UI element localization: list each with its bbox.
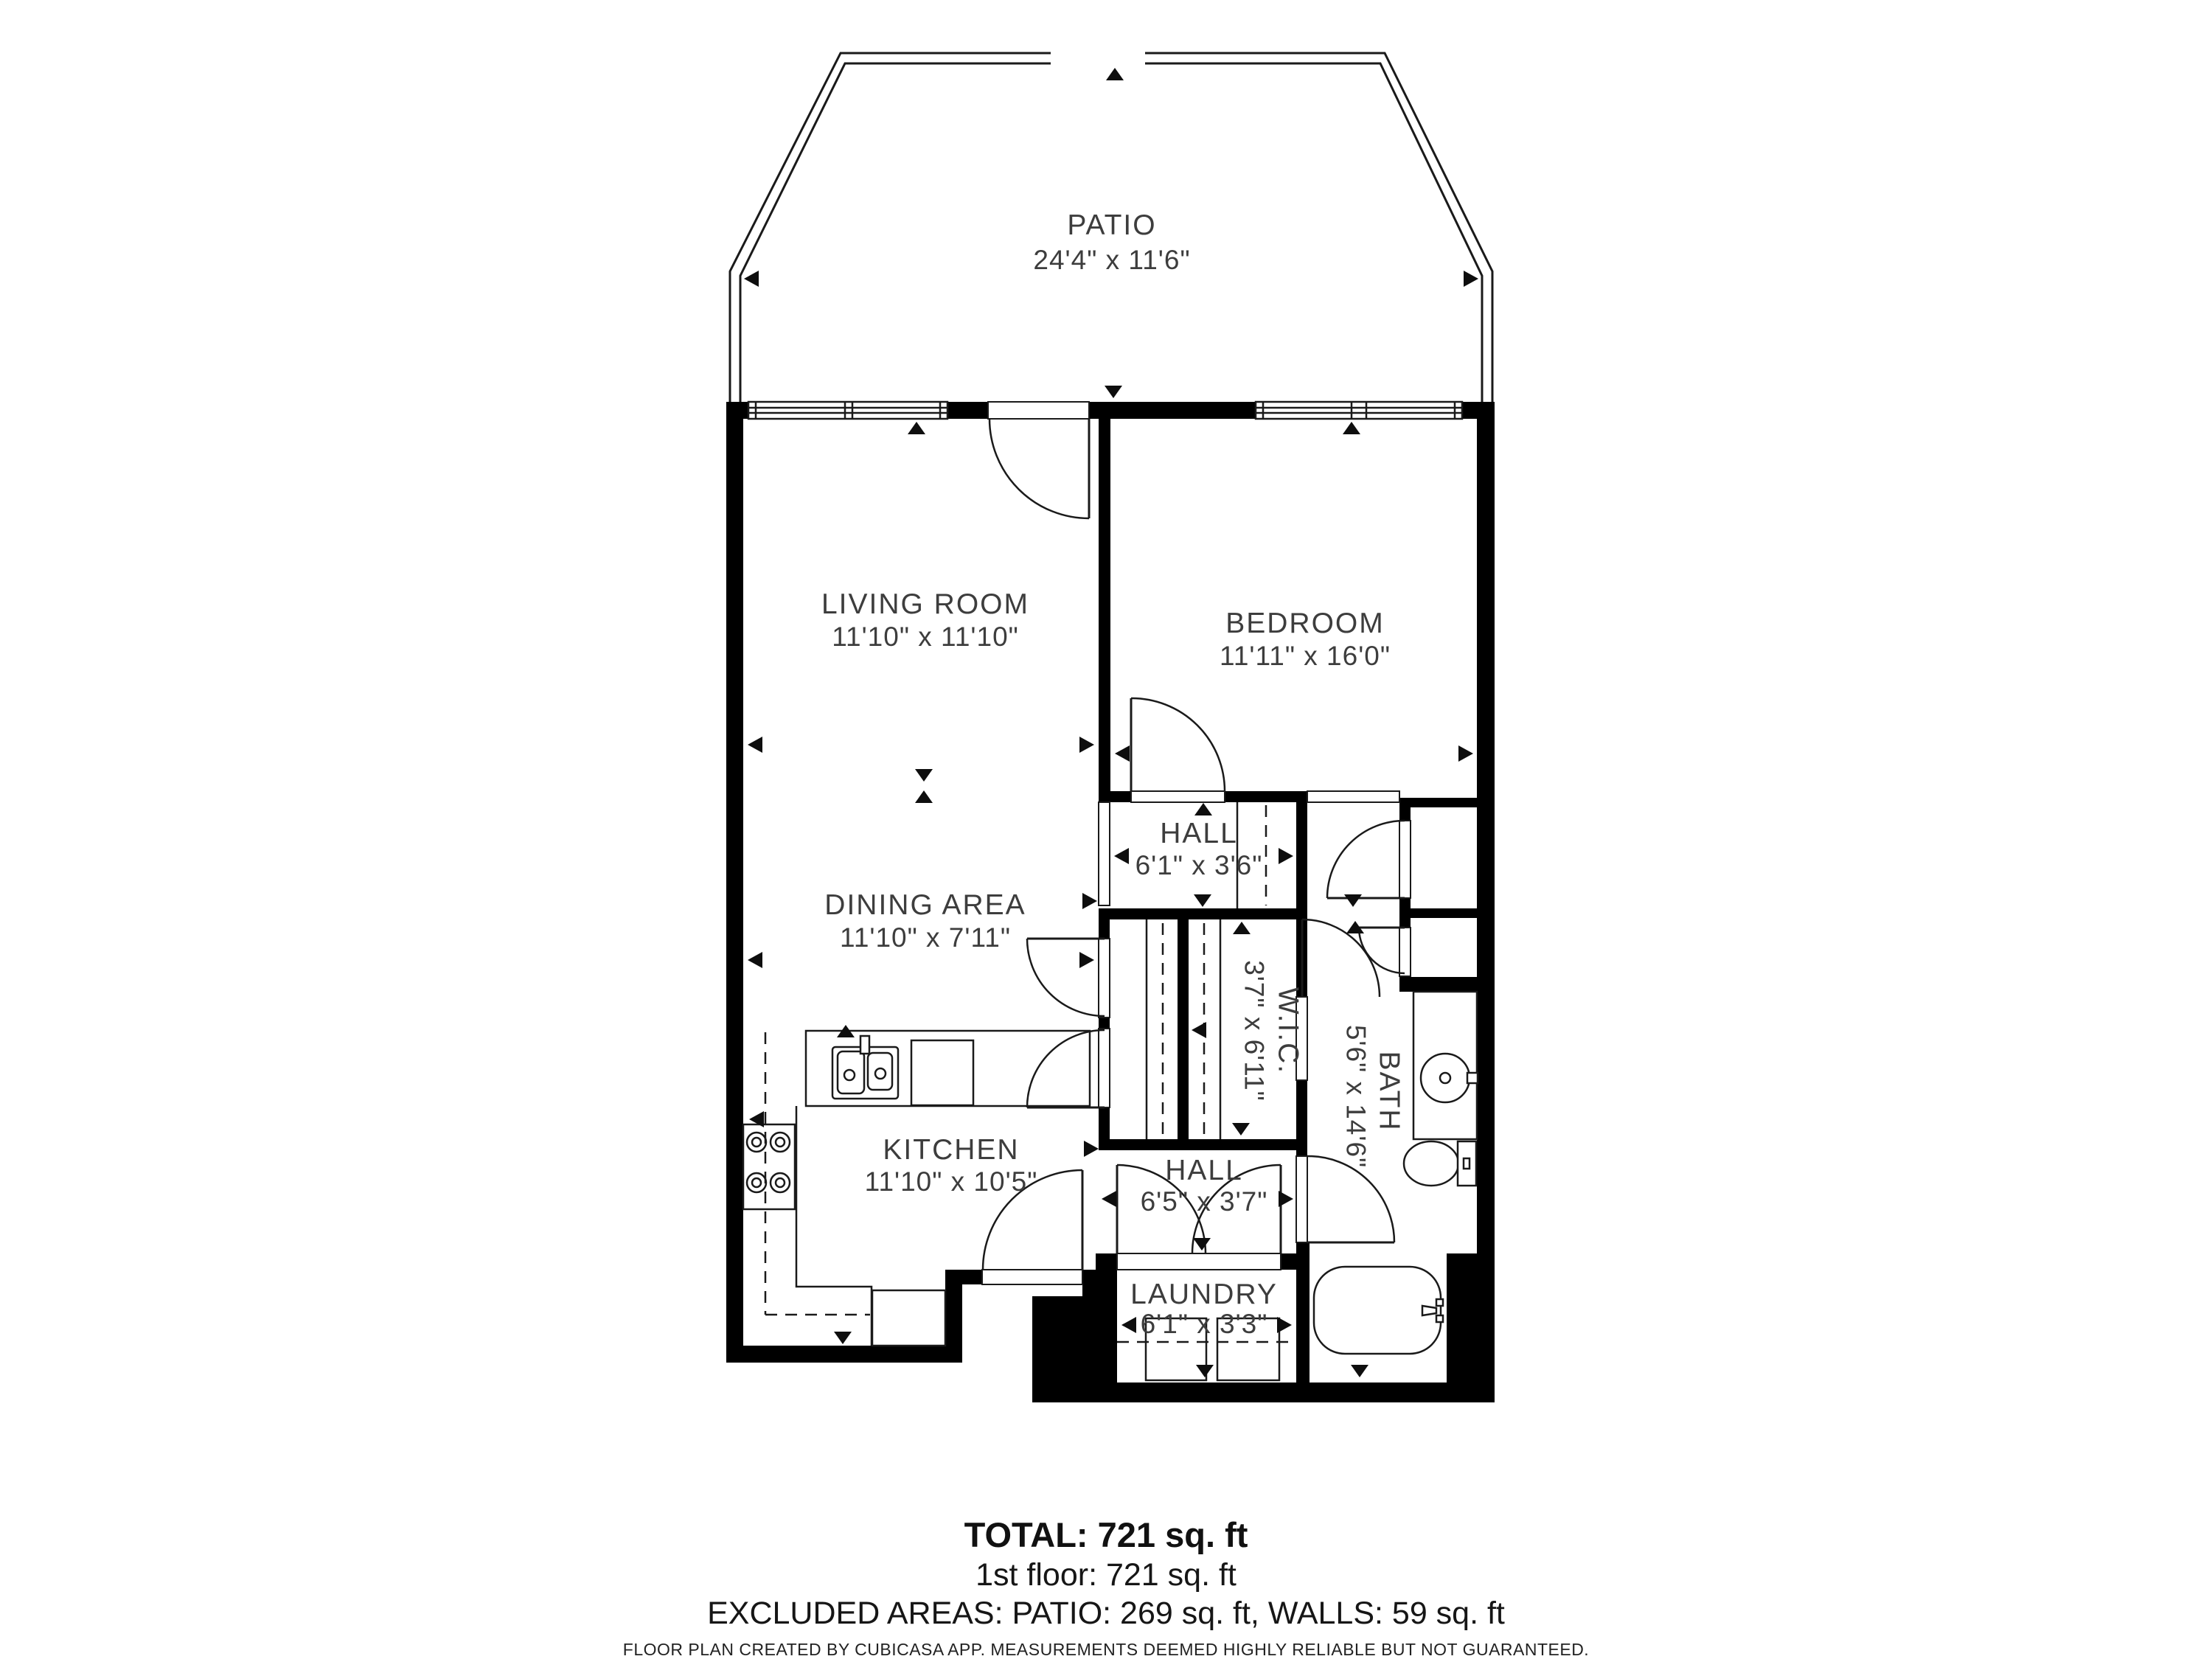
sink-drain-right <box>875 1068 886 1079</box>
wall-left <box>726 402 743 1363</box>
arrow-left-laundry <box>1121 1317 1136 1333</box>
arrow-right-hall-upper <box>1279 848 1293 864</box>
threshold-closet-door-a <box>1099 939 1110 1018</box>
threshold-closetB-door <box>1399 928 1411 976</box>
threshold-bedroom-door <box>1131 791 1225 802</box>
arrow-window-living <box>908 422 925 434</box>
arrow-window-bedroom <box>1343 422 1360 434</box>
toilet-bowl <box>1404 1141 1458 1186</box>
arrow-right-patio <box>1464 271 1478 287</box>
arrow-right-laundry <box>1277 1317 1292 1333</box>
vanity-faucet <box>1467 1073 1478 1083</box>
counter-edge <box>796 1106 872 1346</box>
threshold-patio-door <box>988 402 1089 419</box>
wall-kitchen-bottom <box>726 1346 962 1363</box>
wall-living-bedroom <box>1099 419 1110 791</box>
label-bedroom: BEDROOM <box>1225 608 1385 639</box>
door-wic <box>1302 919 1380 997</box>
door-closetB <box>1359 928 1405 973</box>
vanity-drain <box>1440 1073 1450 1083</box>
summary-excluded: EXCLUDED AREAS: PATIO: 269 sq. ft, WALLS… <box>707 1596 1505 1631</box>
arrow-down-hall-lower <box>1193 1238 1211 1251</box>
dims-patio: 24'4" x 11'6" <box>1033 245 1190 275</box>
dims-kitchen: 11'10" x 10'5" <box>865 1166 1038 1197</box>
sink-faucet <box>860 1036 869 1054</box>
window-living <box>748 402 947 419</box>
label-patio: PATIO <box>1067 209 1156 241</box>
summary-total: TOTAL: 721 sq. ft <box>964 1515 1248 1554</box>
door-bedroom <box>1131 698 1225 791</box>
arrow-right-dining <box>1079 952 1094 968</box>
summary-disclaimer: FLOOR PLAN CREATED BY CUBICASA APP. MEAS… <box>623 1640 1589 1659</box>
door-bath <box>1307 1156 1394 1242</box>
label-laundry: LAUNDRY <box>1130 1279 1278 1310</box>
door-patio <box>990 419 1089 518</box>
arrow-split-up-living <box>915 790 933 803</box>
arrow-left-hall-lower <box>1102 1191 1116 1207</box>
wall-bath-chase <box>1447 1253 1495 1402</box>
arrow-left-living <box>748 737 762 753</box>
threshold-vestibule-opening <box>1307 791 1399 802</box>
room-labels: PATIO 24'4" x 11'6" LIVING ROOM 11'10" x… <box>821 209 1405 1339</box>
arrow-split-down-living <box>915 769 933 782</box>
wall-wic-bottom <box>1099 1139 1307 1150</box>
dims-bedroom: 11'11" x 16'0" <box>1220 641 1391 671</box>
arrow-left-bedroom <box>1115 745 1130 762</box>
dims-laundry: 6'1" x 3'3" <box>1141 1309 1268 1339</box>
arrow-down-hall-upper <box>1194 894 1211 907</box>
door-closet-dining-a <box>1027 939 1105 1016</box>
arrow-left-dining <box>748 952 762 968</box>
arrow-up-wic <box>1233 922 1251 934</box>
threshold-entry-door <box>982 1270 1082 1284</box>
arrow-up-hall-upper <box>1194 803 1212 815</box>
arrow-left-wic <box>1192 1022 1206 1038</box>
arrow-right-living <box>1079 737 1094 753</box>
label-wic: W.I.C. <box>1273 987 1304 1074</box>
wall-hall-bottom <box>1099 908 1307 919</box>
label-dining-area: DINING AREA <box>824 889 1026 921</box>
arrow-right-hall-lower <box>1279 1191 1293 1207</box>
dims-wic: 3'7" x 6'11" <box>1239 960 1270 1102</box>
toilet-button <box>1464 1158 1470 1169</box>
threshold-closet-door-b <box>1099 1029 1110 1107</box>
wall-laundry-left <box>1096 1253 1117 1382</box>
floor-plan: PATIO 24'4" x 11'6" LIVING ROOM 11'10" x… <box>0 0 2212 1659</box>
label-bath: BATH <box>1374 1051 1405 1131</box>
arrow-up-patio <box>1106 68 1124 80</box>
window-bedroom <box>1256 402 1462 419</box>
label-living-room: LIVING ROOM <box>821 588 1029 620</box>
arrow-left-patio <box>744 271 759 287</box>
door-closetA <box>1327 821 1405 898</box>
wall-right <box>1477 402 1495 1402</box>
wall-closetA-left-top <box>1399 798 1411 821</box>
dims-hall-lower: 6'5" x 3'7" <box>1141 1186 1268 1217</box>
arrow-right-bedroom <box>1458 745 1473 762</box>
summary-block: TOTAL: 721 sq. ft 1st floor: 721 sq. ft … <box>623 1515 1589 1659</box>
label-hall-upper: HALL <box>1160 818 1238 849</box>
threshold-laundry-doors <box>1117 1253 1281 1270</box>
wall-wic-right-lower <box>1296 1080 1307 1156</box>
arrow-down-patio <box>1105 386 1122 398</box>
sink-drain-left <box>844 1070 855 1080</box>
label-kitchen: KITCHEN <box>883 1134 1019 1166</box>
arrow-down-vestibule <box>1344 894 1362 907</box>
threshold-hall-dining-opening <box>1099 802 1110 905</box>
threshold-closetA-door <box>1399 821 1411 898</box>
wall-laundry-right <box>1296 1242 1310 1382</box>
arrow-right-passage <box>1084 1141 1099 1157</box>
wall-closet-left-b <box>1099 1018 1110 1029</box>
base-cabinet <box>872 1290 945 1346</box>
arrow-opening-hall-dining <box>1082 893 1097 909</box>
wall-closetA-bottom <box>1399 908 1477 918</box>
label-hall-lower: HALL <box>1165 1155 1243 1186</box>
arrow-down-kitchen <box>834 1332 852 1344</box>
threshold-bath-door <box>1296 1156 1307 1242</box>
wall-closetA-top <box>1399 798 1477 807</box>
arrow-down-bath <box>1351 1365 1368 1377</box>
wall-laundry-top-right <box>1281 1253 1296 1270</box>
wall-closetB-bottom <box>1399 977 1477 992</box>
dims-dining-area: 11'10" x 7'11" <box>840 922 1011 953</box>
arrow-left-hall-upper <box>1114 848 1129 864</box>
dims-bath: 5'6" x 14'6" <box>1341 1025 1371 1168</box>
dims-living-room: 11'10" x 11'10" <box>832 622 1019 652</box>
summary-floor1: 1st floor: 721 sq. ft <box>975 1557 1237 1593</box>
dims-hall-upper: 6'1" x 3'6" <box>1135 850 1263 880</box>
wall-closet-partition <box>1178 919 1189 1139</box>
dishwasher <box>911 1040 973 1105</box>
wall-bottom <box>1082 1382 1495 1402</box>
arrow-down-wic <box>1232 1123 1250 1135</box>
wall-closet-left-a <box>1099 919 1110 939</box>
